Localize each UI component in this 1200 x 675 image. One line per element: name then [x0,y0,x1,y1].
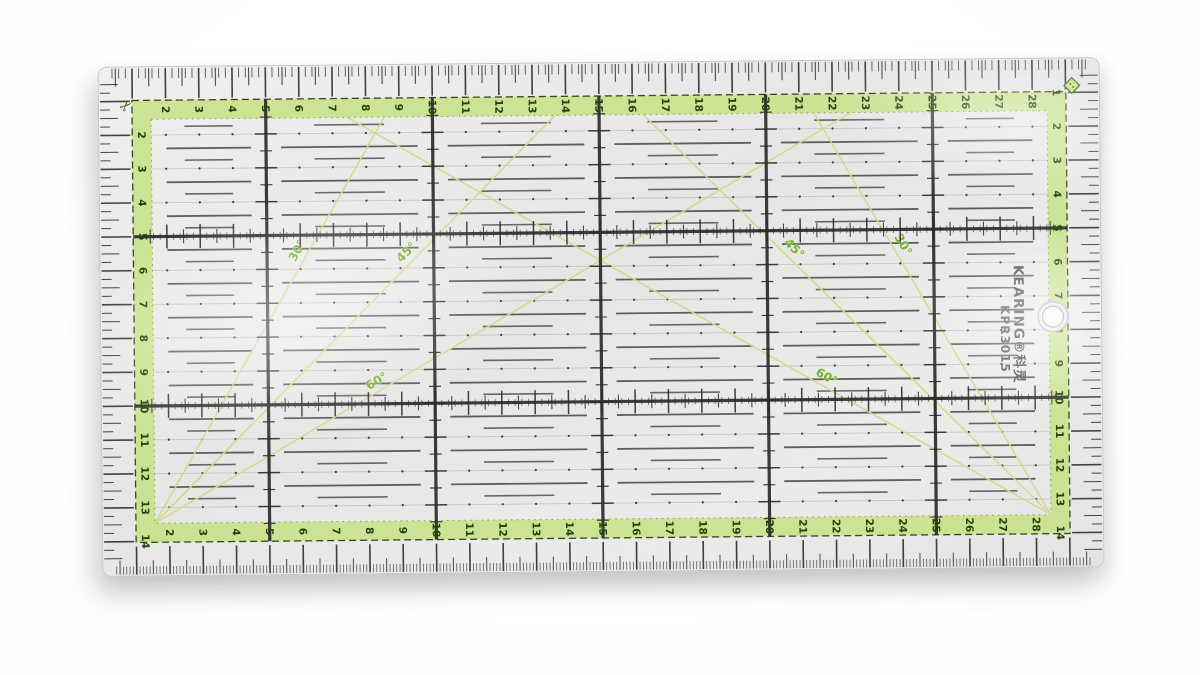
svg-text:3: 3 [135,165,147,172]
svg-text:22: 22 [830,519,842,534]
svg-text:22: 22 [826,96,838,111]
svg-text:13: 13 [526,99,538,114]
svg-text:8: 8 [359,104,371,111]
svg-text:3: 3 [1050,157,1062,164]
svg-text:5: 5 [1051,224,1063,231]
model-text: KPR3015 [998,305,1013,373]
svg-text:23: 23 [863,519,875,534]
svg-text:26: 26 [959,95,971,110]
svg-text:12: 12 [1053,458,1065,473]
svg-text:10: 10 [430,523,442,538]
svg-text:14: 14 [559,98,571,113]
svg-text:2: 2 [1050,123,1062,130]
svg-text:25: 25 [926,95,938,110]
svg-text:13: 13 [139,500,151,515]
svg-text:14: 14 [563,521,575,536]
svg-text:25: 25 [930,518,942,533]
svg-text:2: 2 [135,131,147,138]
svg-text:24: 24 [892,95,904,110]
svg-text:4: 4 [1051,190,1063,197]
svg-text:12: 12 [492,99,504,114]
svg-text:3: 3 [192,106,204,113]
svg-text:14: 14 [139,534,151,549]
svg-text:14: 14 [1054,525,1066,540]
svg-text:15: 15 [592,98,604,113]
svg-text:8: 8 [363,527,375,534]
svg-text:20: 20 [763,520,775,535]
svg-text:7: 7 [1052,292,1064,299]
svg-text:7: 7 [330,527,342,534]
svg-text:9: 9 [1052,360,1064,367]
svg-text:4: 4 [230,528,242,535]
svg-text:26: 26 [963,518,975,533]
svg-text:16: 16 [626,98,638,113]
quilting-ruler: 30°45°60°30°45°60°2345678910111213141516… [98,57,1105,577]
svg-text:12: 12 [138,466,150,481]
svg-text:6: 6 [296,528,308,535]
ruler-svg: 30°45°60°30°45°60°2345678910111213141516… [99,58,1104,576]
svg-text:6: 6 [1051,258,1063,265]
svg-text:13: 13 [530,522,542,537]
svg-text:27: 27 [992,94,1004,109]
svg-text:10: 10 [1053,390,1065,405]
svg-text:7: 7 [326,104,338,111]
svg-text:11: 11 [463,522,475,537]
svg-text:17: 17 [663,520,675,535]
svg-text:21: 21 [792,96,804,111]
svg-text:9: 9 [396,527,408,534]
svg-text:11: 11 [1053,424,1065,439]
svg-text:10: 10 [138,399,150,414]
svg-text:9: 9 [392,104,404,111]
svg-text:6: 6 [292,105,304,112]
svg-text:13: 13 [1054,492,1066,507]
svg-text:19: 19 [730,520,742,535]
hanging-hole [1038,302,1068,332]
svg-text:7: 7 [137,301,149,308]
svg-text:4: 4 [226,105,238,112]
svg-text:28: 28 [1030,517,1042,532]
svg-text:17: 17 [659,98,671,113]
svg-text:2: 2 [159,106,171,113]
svg-text:6: 6 [136,267,148,274]
svg-text:11: 11 [138,433,150,448]
svg-text:18: 18 [692,97,704,112]
svg-text:5: 5 [263,528,275,535]
svg-text:1: 1 [1050,89,1062,96]
svg-text:18: 18 [696,520,708,535]
svg-text:8: 8 [137,335,149,342]
svg-text:16: 16 [630,521,642,536]
svg-text:15: 15 [596,521,608,536]
svg-text:21: 21 [796,519,808,534]
svg-text:19: 19 [726,97,738,112]
svg-text:23: 23 [859,96,871,111]
svg-text:3: 3 [196,529,208,536]
svg-text:20: 20 [759,97,771,112]
svg-text:4: 4 [136,199,148,206]
svg-text:5: 5 [259,105,271,112]
svg-text:27: 27 [996,517,1008,532]
svg-text:5: 5 [136,233,148,240]
photo-background: 30°45°60°30°45°60°2345678910111213141516… [0,0,1200,675]
svg-text:9: 9 [137,368,149,375]
svg-text:24: 24 [896,518,908,533]
svg-text:2: 2 [163,529,175,536]
svg-text:28: 28 [1026,94,1038,109]
svg-text:10: 10 [426,100,438,115]
svg-text:11: 11 [459,99,471,114]
svg-text:12: 12 [496,522,508,537]
